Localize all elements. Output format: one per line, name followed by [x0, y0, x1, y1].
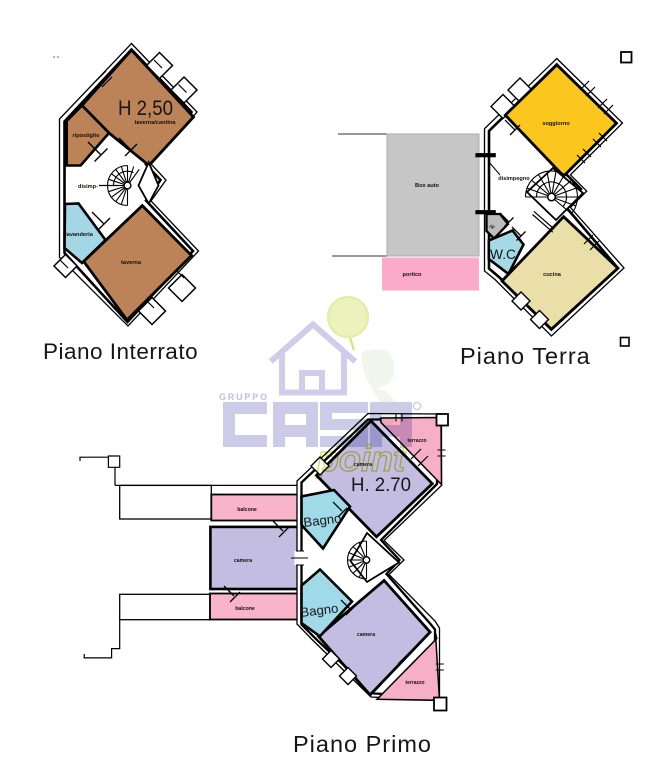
svg-text:point: point — [316, 438, 407, 479]
svg-text:H 2,50: H 2,50 — [118, 97, 173, 120]
svg-text:portico: portico — [403, 272, 423, 278]
svg-text:terrazzo: terrazzo — [405, 680, 424, 686]
svg-text:cucina: cucina — [543, 272, 562, 278]
svg-text:disimpegno: disimpegno — [498, 176, 530, 182]
svg-text:disimp-: disimp- — [78, 184, 98, 190]
svg-text:balcone: balcone — [237, 507, 257, 513]
svg-text:Piano Terra: Piano Terra — [460, 343, 591, 369]
svg-text:lavanderia: lavanderia — [65, 232, 94, 238]
svg-text:GRUPPO: GRUPPO — [219, 392, 269, 402]
svg-text:camera: camera — [234, 558, 252, 564]
svg-text:ripostiglio: ripostiglio — [72, 133, 100, 139]
svg-text:camera: camera — [357, 632, 375, 638]
svg-text:Piano Primo: Piano Primo — [293, 731, 432, 757]
svg-text:taverna/cantina: taverna/cantina — [134, 120, 176, 126]
svg-text:taverna: taverna — [121, 260, 142, 266]
svg-text:Piano Interrato: Piano Interrato — [43, 339, 198, 364]
svg-text:rip: rip — [489, 224, 495, 229]
svg-text:W.C: W.C — [490, 246, 516, 262]
svg-text:balcone: balcone — [235, 606, 255, 612]
svg-text:Box auto: Box auto — [415, 183, 440, 189]
svg-text:soggiorno: soggiorno — [542, 121, 570, 127]
